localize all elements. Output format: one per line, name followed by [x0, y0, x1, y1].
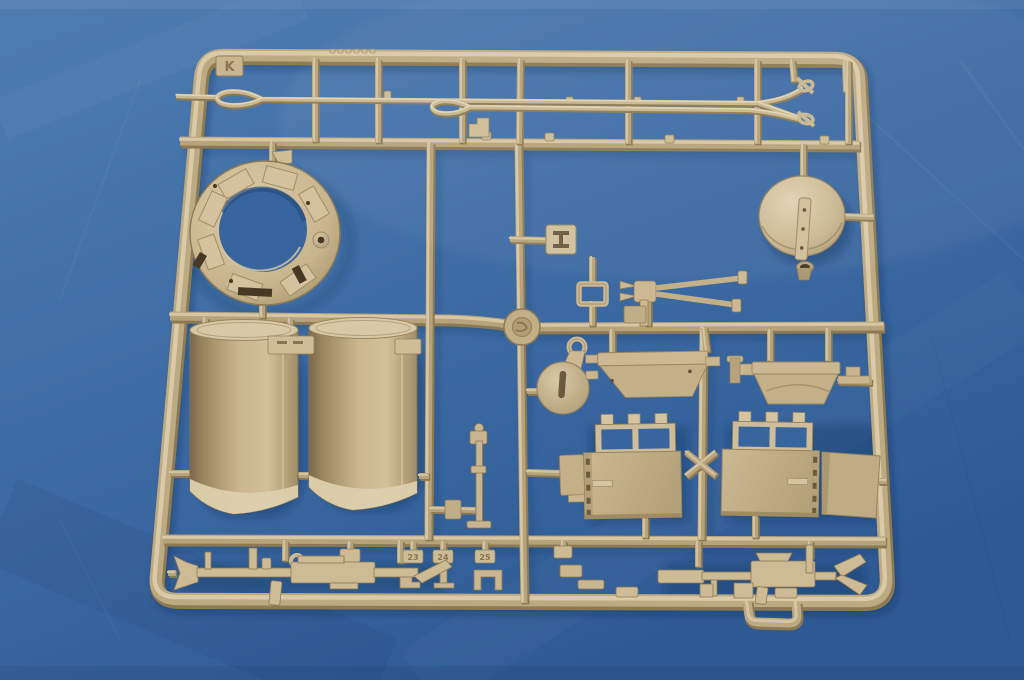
sprue-photo: K	[0, 0, 1024, 680]
part-number-tag: 25	[479, 553, 491, 562]
part-number-tag: 24	[437, 553, 449, 562]
runner-hub	[504, 309, 540, 345]
sprue-letter: K	[224, 60, 235, 75]
hatch-panel-right-part	[721, 411, 820, 517]
part-number-tag: 23	[407, 553, 418, 562]
photo-canvas: K	[0, 0, 1024, 680]
sprue-letter-tab: K	[216, 56, 243, 76]
small-plate-part	[559, 455, 584, 496]
side-plate-part	[822, 452, 880, 518]
